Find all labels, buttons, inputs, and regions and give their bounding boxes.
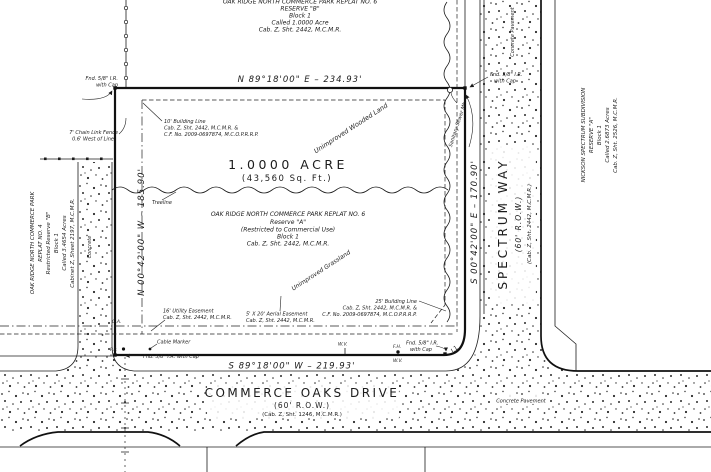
north-parcel-record: Cab. Z, Sht. 2442, M.C.M.R.: [259, 27, 342, 34]
monument-sw: [113, 353, 116, 356]
spectrum-way-name: SPECTRUM WAY: [496, 158, 510, 289]
east-title: NICKSON SPECTRUM SUBDIVISION: [581, 88, 587, 183]
guy-anchor-label: G.A.: [112, 319, 122, 325]
west-title: OAK RIDGE NORTH COMMERCE PARK: [30, 191, 36, 294]
fire-hydrant-label: F.H.: [393, 344, 401, 350]
commerce-oaks-name: COMMERCE OAKS DRIVE: [205, 386, 400, 400]
fnd-nw-l1: Fnd. 5/8" I.R.: [86, 76, 118, 82]
north-parcel-block-no: Block 1: [289, 13, 311, 20]
concrete-pavement-label-top: Concrete Pavement: [510, 6, 516, 56]
aerial-l2: Cab. Z, Sht. 2442, M.C.M.R.: [246, 318, 315, 324]
wooded-land-label: Unimproved Wooded Land: [313, 101, 391, 155]
fnd-ne-l1: Fnd. 5/8" I.R.: [490, 72, 522, 78]
bl25-l2: Cab. Z, Sht. 2442, M.C.M.R. &: [343, 306, 417, 312]
concrete-label-west: Concrete: [87, 236, 93, 259]
grassland-label: Unimproved Grassland: [290, 249, 352, 292]
fnd-se-l1: Fnd. 5/8" I.R.: [406, 341, 438, 347]
east-called: Called 2.6873 Acres: [605, 107, 611, 162]
util16-l1: 16' Utility Easement: [163, 309, 215, 315]
east-record: Cab. Z, Sht. 2526, M.C.M.R.: [613, 97, 619, 173]
east-row-line: [555, 0, 576, 371]
fnd-ne-l2: with Cap: [494, 79, 516, 85]
east-parcel-block: NICKSON SPECTRUM SUBDIVISION RESERVE "A"…: [581, 88, 619, 183]
commerce-south-curb: [20, 432, 711, 446]
bl25-l3: C.F. No. 2009-0697874, M.C.O.P.R.R.P.: [322, 312, 417, 318]
sanitary-manhole-symbol: [447, 87, 452, 92]
fnd-se-l2: with Cap: [410, 347, 432, 353]
building-line-10-note: 10' Building Line Cab. Z, Sht. 2442, M.C…: [164, 119, 259, 138]
subject-reserve: Reserve "A": [270, 219, 306, 226]
commerce-oaks-row: (60' R.O.W.): [274, 401, 330, 410]
pavement-joints: [207, 447, 425, 472]
fence-l1: 7' Chain Link Fence: [69, 130, 118, 136]
west-block: Block 1: [54, 233, 60, 253]
cable-marker-symbol: [149, 348, 152, 351]
treeline-horizontal: [112, 187, 448, 193]
chain-link-fence: [124, 0, 127, 88]
bearing-south: S 89°18'00" W – 219.93': [229, 362, 356, 372]
lot-area-sqft: (43,560 Sq. Ft.): [242, 174, 332, 184]
water-valve-label-mid: W.V.: [338, 342, 348, 348]
bearing-north: N 89°18'00" E – 234.93': [238, 75, 363, 85]
subject-block: Block 1: [277, 234, 299, 241]
treeline-label: Treeline: [152, 200, 172, 206]
water-valve-label-se: W.V.: [393, 358, 403, 364]
spectrum-way-record: (Cab. Z, Sht. 2442, M.C.M.R.): [527, 184, 533, 264]
fence-l2: 0.6' West of Line: [72, 137, 114, 143]
bl25-l1: 25' Building Line: [375, 299, 417, 305]
monument-ne: [463, 86, 466, 89]
monument-se: [443, 352, 446, 355]
fire-hydrant-symbol: [396, 350, 399, 353]
subject-record: Cab. Z, Sht. 2442, M.C.M.R.: [247, 241, 330, 248]
spectrum-way-row: (60' R.O.W.): [514, 196, 523, 253]
north-parcel-block: OAK RIDGE NORTH COMMERCE PARK REPLAT NO.…: [223, 0, 378, 34]
west-parcel-block: OAK RIDGE NORTH COMMERCE PARK REPLAT NO.…: [30, 191, 76, 294]
power-pole-symbol: [122, 347, 125, 350]
bl10-l3: C.F. No. 2009-0697874, M.C.O.P.R.R.P.: [164, 132, 259, 138]
spectrum-east-curb: [541, 0, 711, 371]
fence-note: 7' Chain Link Fence 0.6' West of Line: [69, 130, 118, 143]
treeline-vertical: [444, 2, 450, 322]
plat-drawing: OAK RIDGE NORTH COMMERCE PARK REPLAT NO.…: [0, 0, 711, 472]
subject-parcel-block: OAK RIDGE NORTH COMMERCE PARK REPLAT NO.…: [211, 211, 366, 248]
bearing-east: S 00°42'00" E – 170.90': [470, 160, 480, 284]
bl10-l2: Cab. Z, Sht. 2442, M.C.M.R. &: [164, 126, 238, 132]
west-record: Cabinet Z, Sheet 2197, M.C.M.R.: [70, 198, 76, 288]
subject-title: OAK RIDGE NORTH COMMERCE PARK REPLAT NO.…: [211, 211, 366, 218]
fnd-sw: Fnd. 5/8" I.R. with Cap: [143, 354, 199, 360]
lot-area-acres: 1.0000 ACRE: [228, 157, 348, 172]
survey-plat-page: OAK RIDGE NORTH COMMERCE PARK REPLAT NO.…: [0, 0, 711, 472]
aerial-easement-note: 5' X 20' Aerial Easement Cab. Z, Sht. 24…: [246, 312, 315, 325]
east-reserve: RESERVE "A": [589, 117, 595, 153]
bl10-l1: 10' Building Line: [164, 119, 206, 125]
west-replat: REPLAT NO. 4: [38, 224, 44, 262]
utility-easement-note: 16' Utility Easement Cab. Z, Sht. 2442, …: [163, 309, 232, 322]
north-parcel-reserve: RESERVE "B": [280, 6, 319, 13]
subject-restriction: (Restricted to Commercial Use): [241, 227, 335, 234]
east-block: Block 1: [597, 125, 603, 145]
cable-marker-label: Cable Marker: [157, 340, 191, 346]
bearing-west: N 00°42'00" W – 185.90': [137, 168, 147, 296]
power-pole-label: P.P.: [110, 347, 117, 353]
north-parcel-called: Called 1.0000 Acre: [271, 20, 328, 27]
util16-l2: Cab. Z, Sht. 2442, M.C.M.R.: [163, 315, 232, 321]
west-reserve: Restricted Reserve "B": [46, 212, 52, 275]
fnd-nw-l2: with Cap: [96, 83, 118, 89]
west-called: Called 3.4654 Acres: [62, 215, 68, 270]
concrete-pavement-label-bottom: Concrete Pavement: [496, 399, 546, 405]
building-line-25-note: 25' Building Line Cab. Z, Sht. 2442, M.C…: [322, 299, 417, 318]
aerial-l1: 5' X 20' Aerial Easement: [246, 312, 308, 318]
commerce-oaks-record: (Cab. Z, Sht. 1246, M.C.M.R.): [262, 412, 342, 418]
